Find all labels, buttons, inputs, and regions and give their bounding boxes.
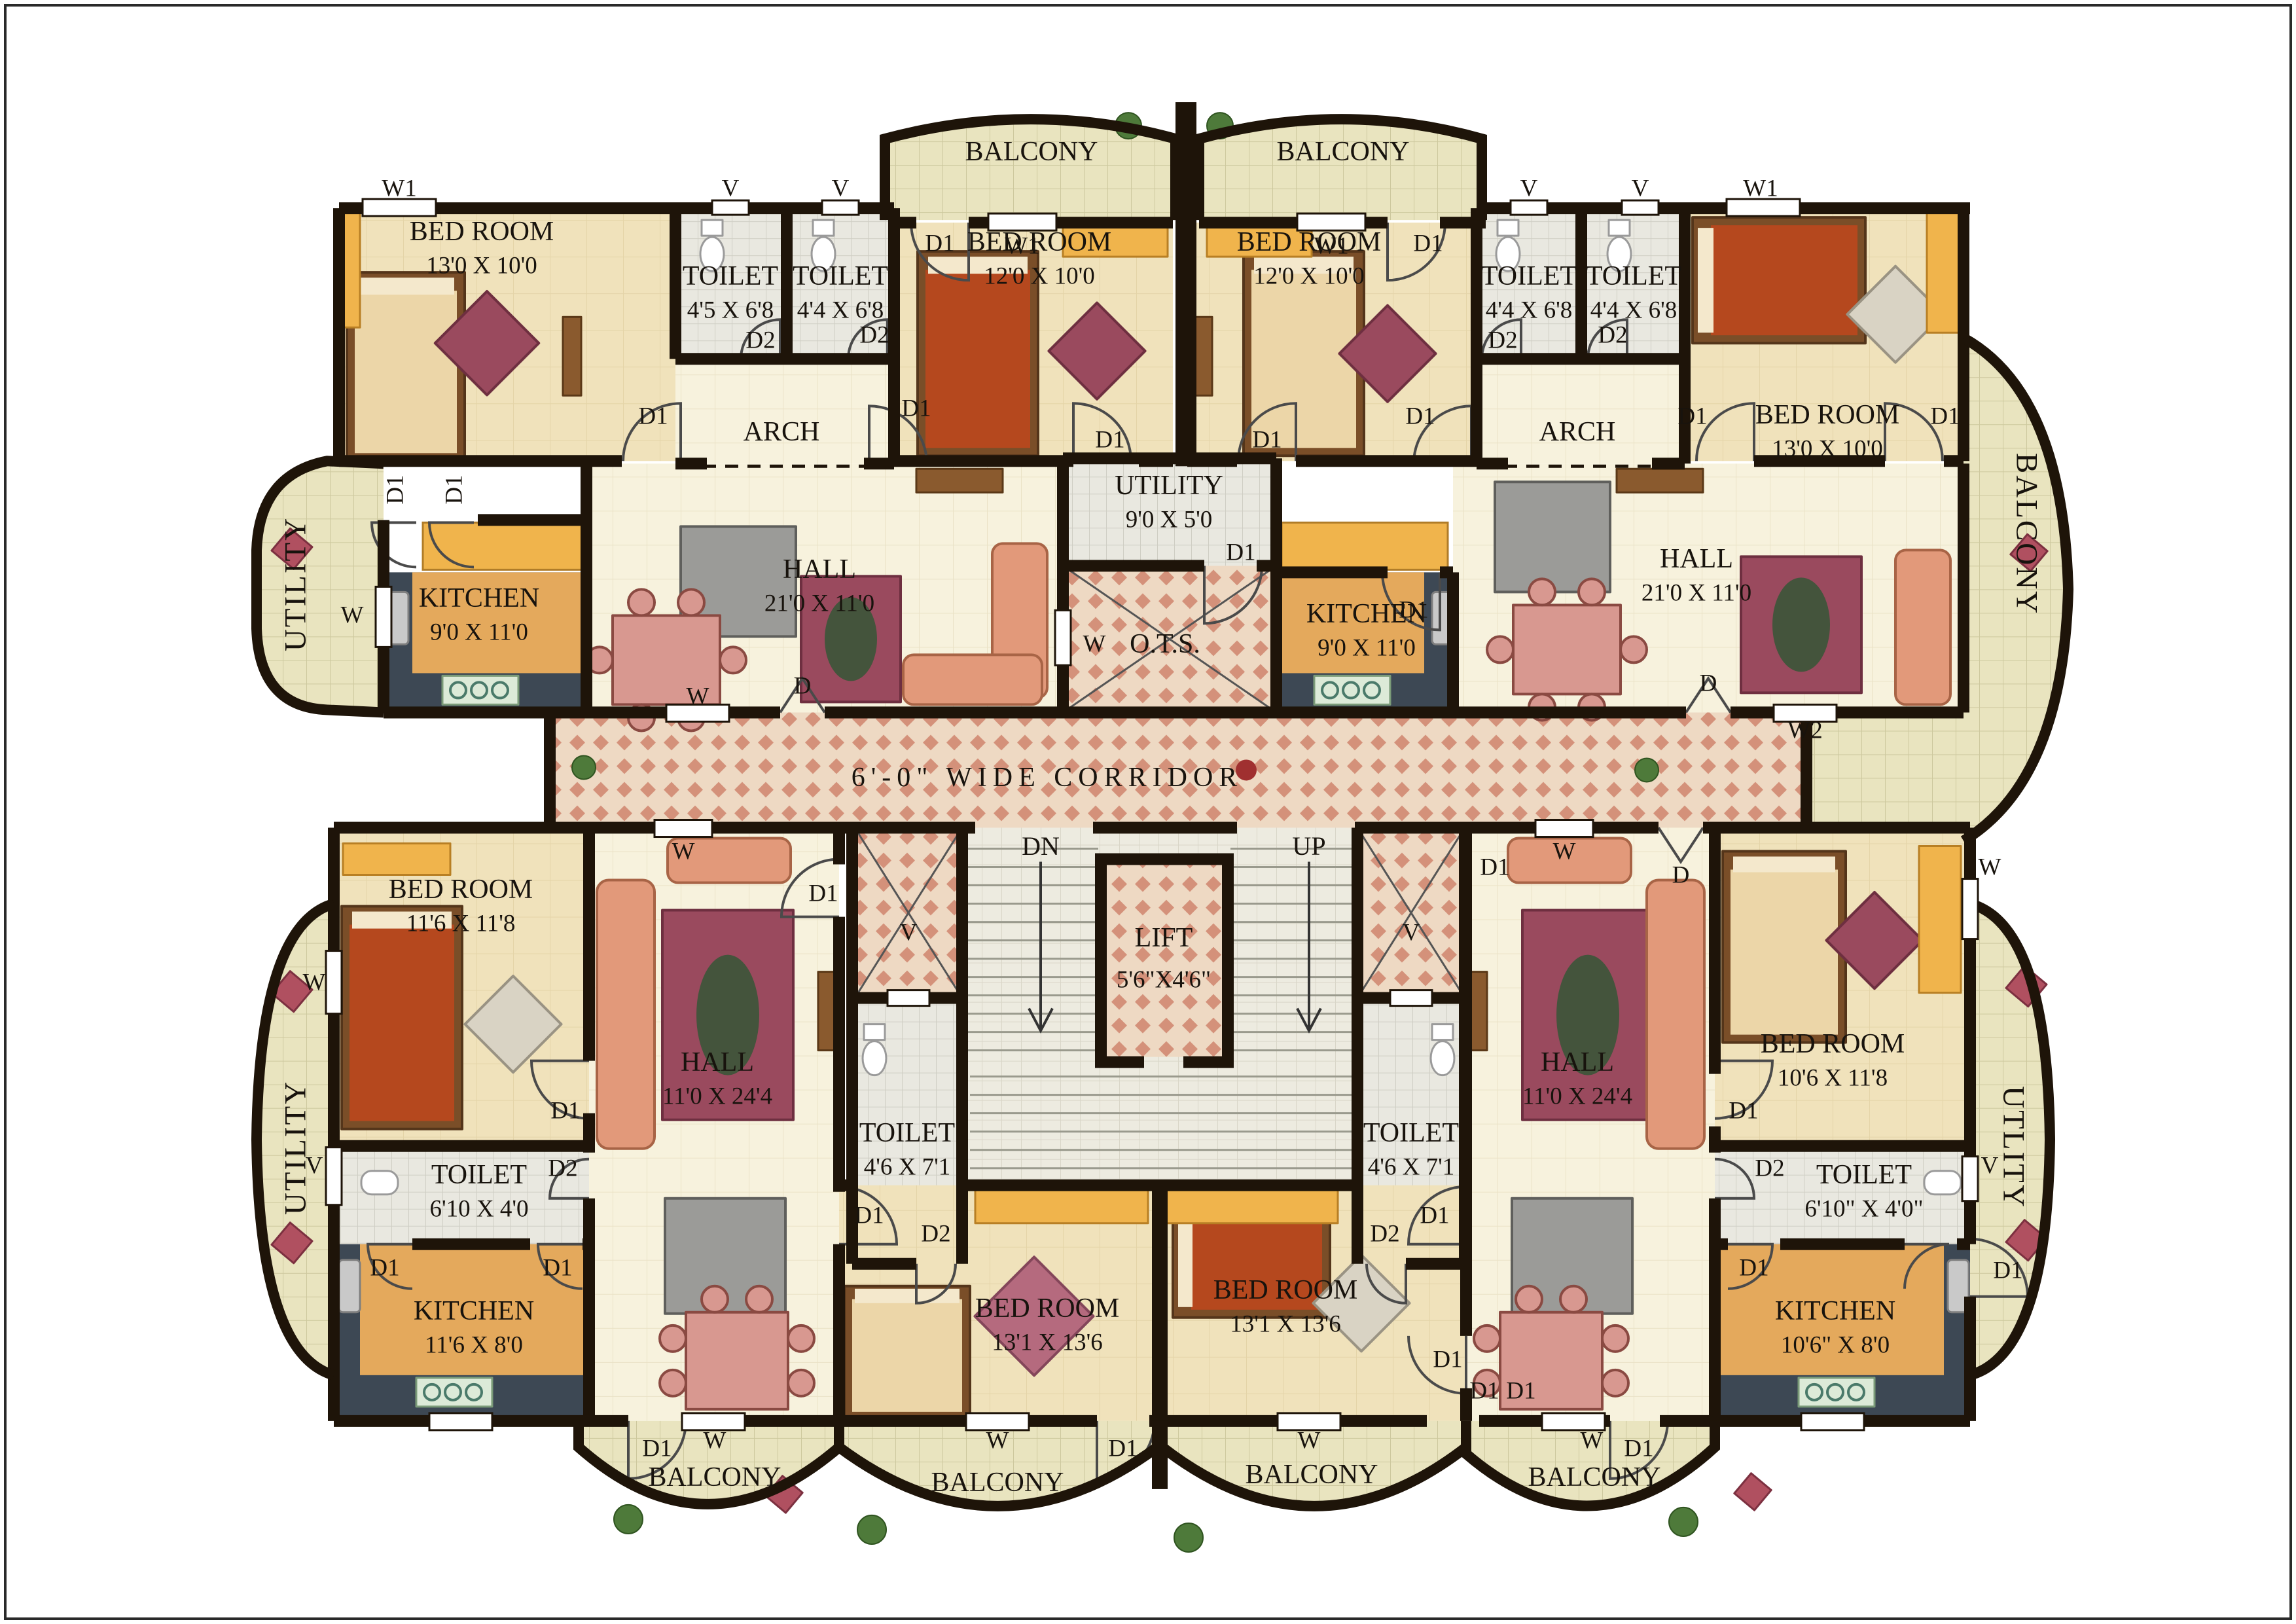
flower-icon [1236, 759, 1257, 780]
vent-window-icon [822, 200, 859, 215]
window-icon [363, 199, 436, 216]
window-icon [429, 1413, 492, 1430]
window-icon [1297, 213, 1365, 230]
window-icon [326, 1147, 342, 1205]
window-icon [1962, 879, 1978, 939]
sofa-icon [1647, 880, 1704, 1149]
window-icon [988, 213, 1056, 230]
rug-icon [1741, 556, 1861, 693]
window-icon [326, 951, 342, 1014]
window-icon [888, 990, 929, 1006]
rug-icon [662, 911, 793, 1120]
floor-plan-page: BED ROOM13'0 X 10'0TOILET4'5 X 6'8TOILET… [0, 0, 2296, 1624]
bed-icon [1693, 217, 1865, 343]
bed-icon [347, 272, 465, 461]
tv-unit-icon [563, 317, 581, 395]
bed-icon [918, 251, 1038, 456]
window-icon [1774, 704, 1837, 721]
rug-icon [801, 576, 901, 702]
tv-unit-icon [1617, 469, 1703, 492]
window-icon [1801, 1413, 1864, 1430]
tv-unit-icon [916, 469, 1003, 492]
window-icon [1390, 990, 1432, 1006]
vent-window-icon [712, 200, 749, 215]
window-icon [1962, 1157, 1978, 1201]
window-icon [966, 1413, 1029, 1430]
vent-window-icon [1511, 200, 1547, 215]
window-icon [1542, 1413, 1605, 1430]
floor-plan-drawing [0, 0, 2296, 1624]
bed-icon [1723, 852, 1846, 1043]
window-icon [1278, 1413, 1340, 1430]
sofa-icon [668, 839, 791, 883]
sofa-icon [597, 880, 655, 1149]
sofa-icon [1508, 839, 1631, 883]
tv-unit-icon [1194, 317, 1212, 395]
window-icon [655, 820, 712, 837]
window-icon [1727, 199, 1800, 216]
rug-icon [1522, 911, 1653, 1120]
rug-icon [1495, 482, 1610, 592]
sofa-icon [1895, 550, 1950, 704]
window-icon [1535, 820, 1593, 837]
bed-icon [844, 1286, 970, 1417]
window-icon [666, 704, 729, 721]
window-icon [1055, 610, 1071, 665]
window-icon [376, 586, 391, 647]
window-icon [682, 1413, 745, 1430]
vent-window-icon [1622, 200, 1659, 215]
sofa-icon [903, 655, 1042, 704]
bed-icon [342, 907, 462, 1129]
